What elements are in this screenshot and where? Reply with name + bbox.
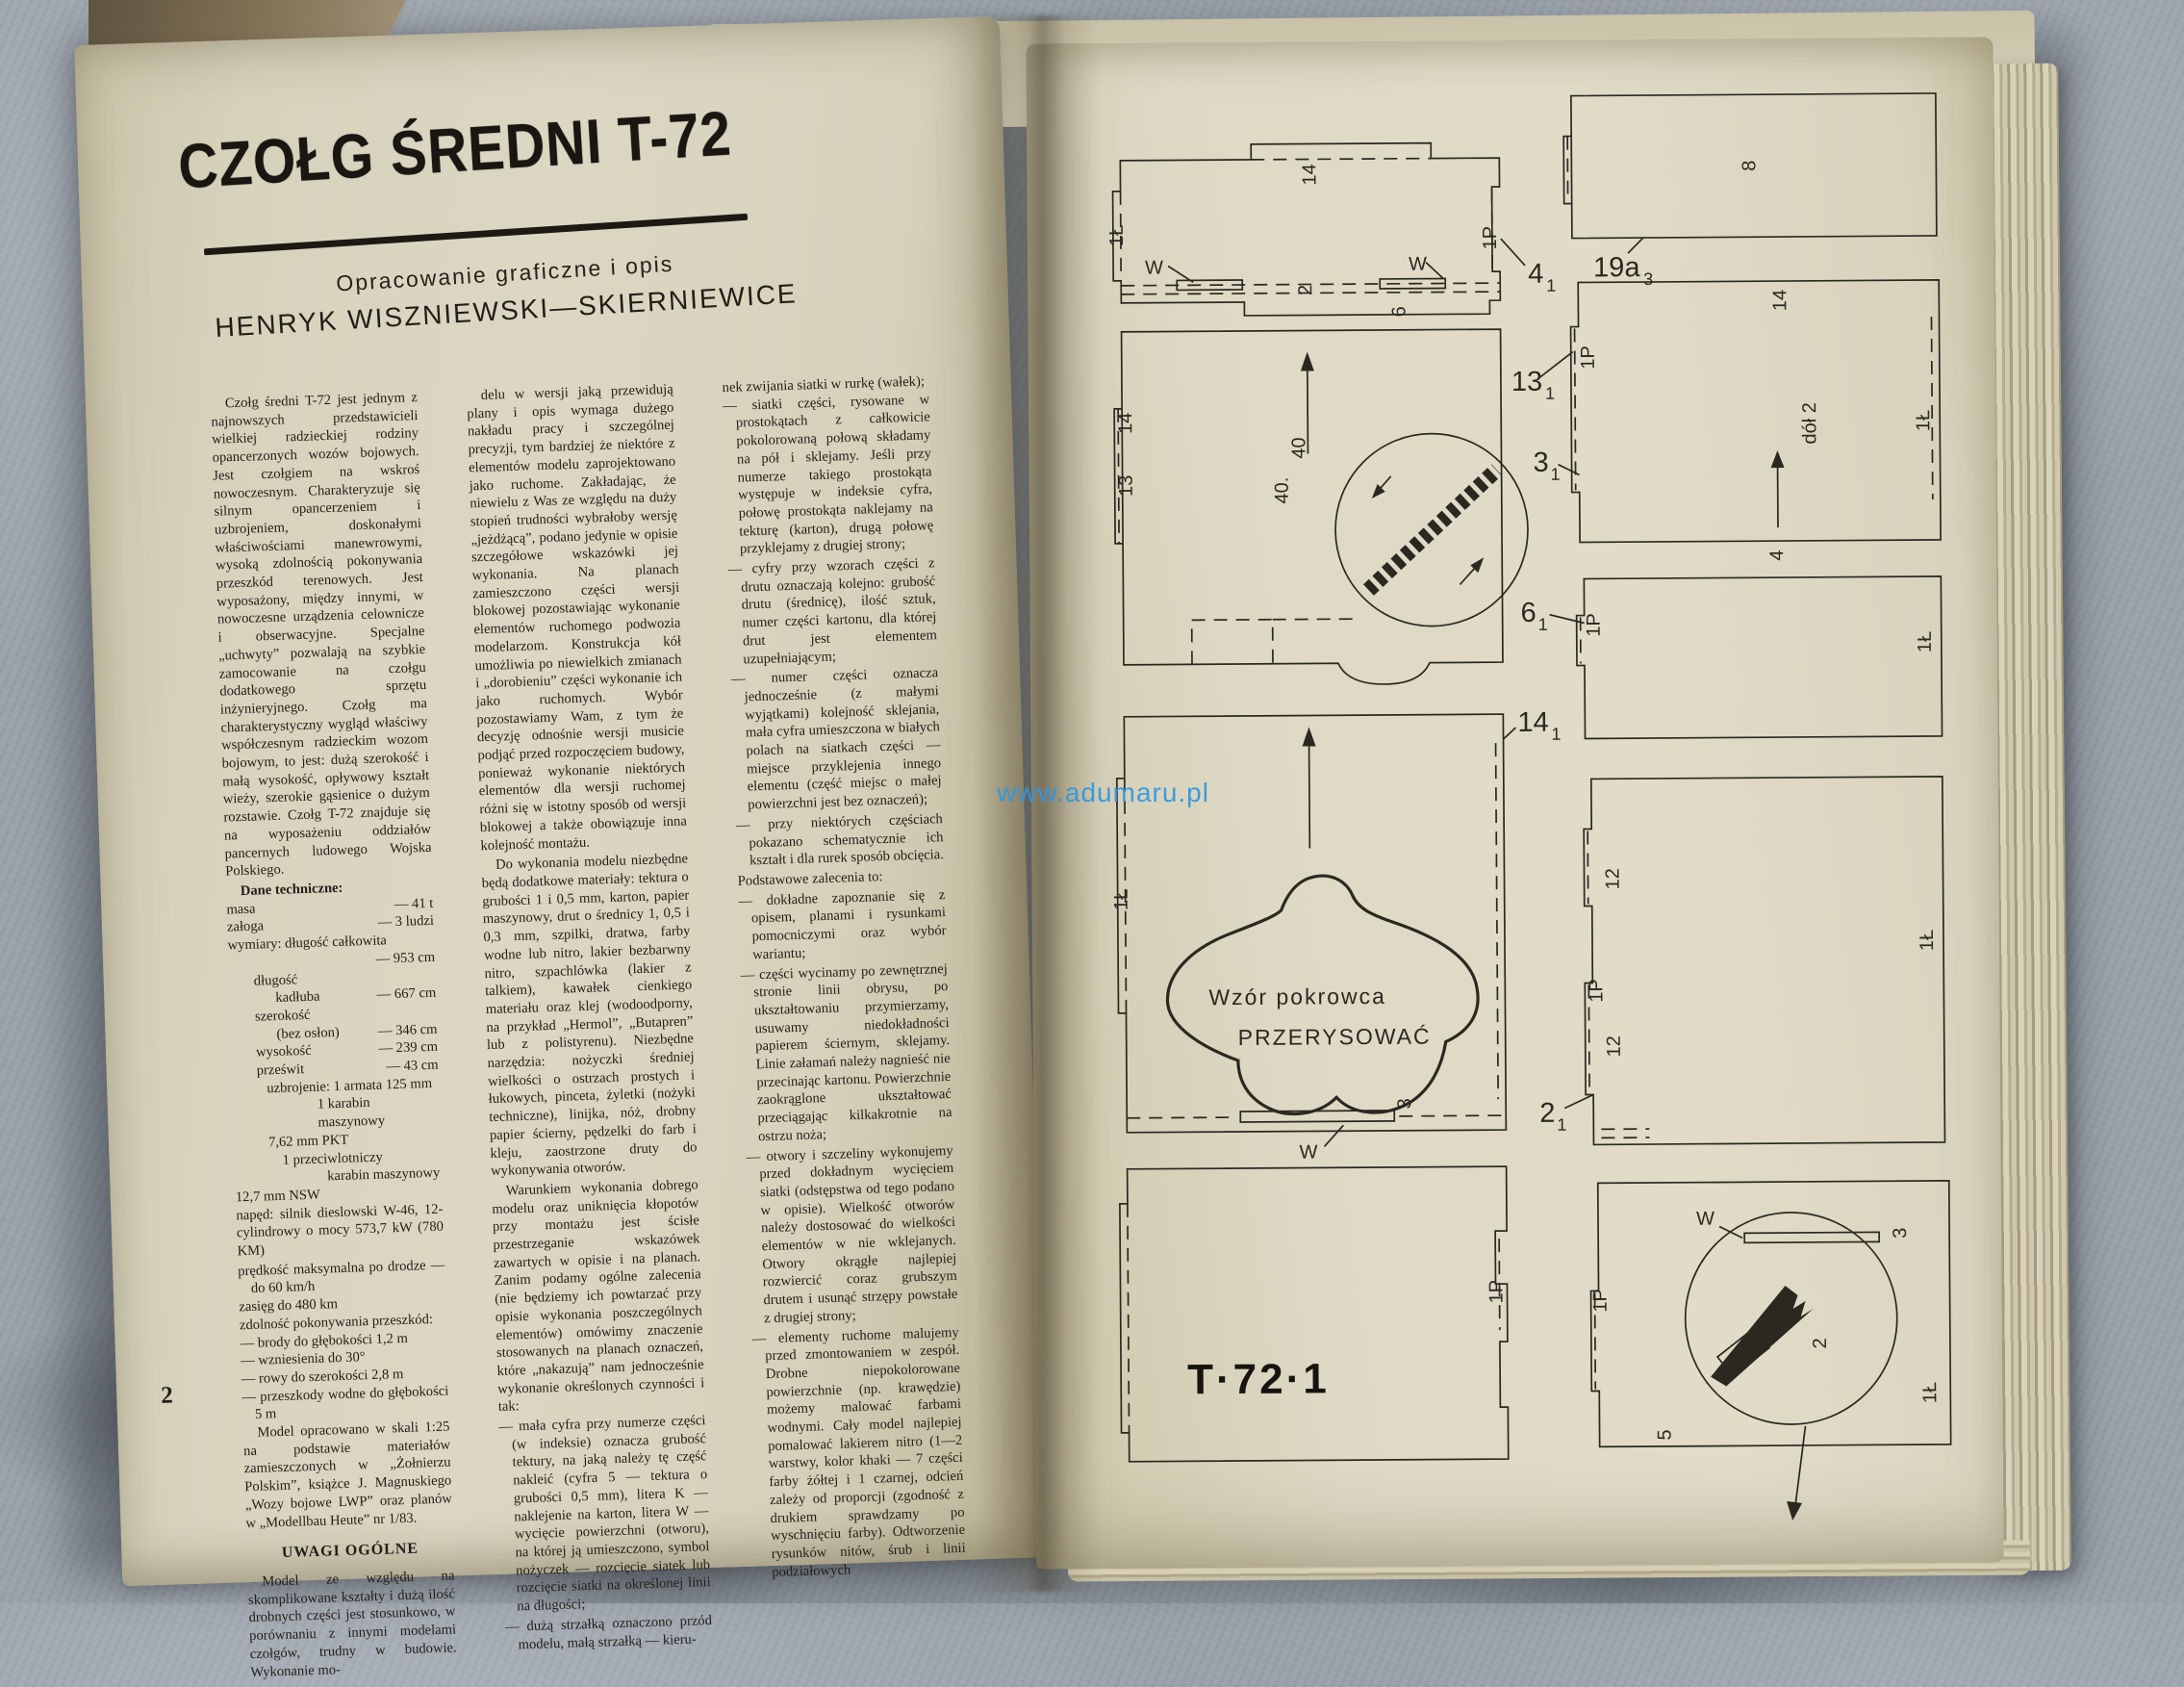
- part-label: 1Ł: [1913, 410, 1934, 431]
- part-a2: 14 13 40 40.: [1114, 329, 1530, 686]
- part-outline: [1570, 280, 1941, 543]
- front-arrow-head: [1302, 727, 1315, 746]
- part-number-callout-sub: 1: [1545, 384, 1555, 403]
- part-label: 6: [1388, 306, 1409, 317]
- drive-note: napęd: silnik dieslowski W-46, 12-cylind…: [236, 1200, 444, 1261]
- bullet-item: — cyfry przy wzorach części z drutu ozna…: [727, 554, 937, 669]
- model-source-note: Model opracowano w skali 1:25 na podstaw…: [242, 1419, 452, 1533]
- part-label: 12: [1604, 1035, 1625, 1057]
- detail-circle: [1334, 433, 1528, 626]
- part-outline: [1120, 1166, 1509, 1462]
- spec-label: długość: [229, 971, 298, 991]
- part-label: 1Ł: [1919, 1382, 1941, 1403]
- intro-paragraph: Czołg średni T-72 jest jednym z najnowsz…: [211, 389, 433, 881]
- part-number-callout: 2: [1539, 1098, 1555, 1129]
- part-label: 3: [1394, 1098, 1415, 1109]
- part-label: 1P: [1586, 979, 1607, 1003]
- part-label: 3: [1890, 1228, 1911, 1239]
- text-line: karabin maszynowy: [327, 1164, 443, 1186]
- bullet-item: — części wycinamy po zewnętrznej stronie…: [741, 960, 953, 1147]
- article-column-2: delu w wersji jaką przewidują plany i op…: [467, 381, 714, 1675]
- column-2-paragraphs: delu w wersji jaką przewidują plany i op…: [467, 381, 706, 1417]
- detail-arrow-head: [1787, 1501, 1802, 1521]
- part-b3: 1P 1Ł 4 6 1: [1520, 549, 1942, 739]
- part-number-callout: 6: [1521, 598, 1536, 628]
- part-number-callout-sub: 1: [1551, 465, 1561, 484]
- spec-value: [434, 931, 435, 949]
- part-b1: 8 19a 3: [1563, 93, 1937, 290]
- spec-value: [435, 966, 436, 984]
- remarks-paragraph: Model ze względu na skomplikowane kształ…: [247, 1567, 457, 1681]
- cutout-label: W: [1696, 1209, 1714, 1230]
- article-title: CZOŁG ŚREDNI T-72: [170, 97, 739, 204]
- cover-pattern-text-2: PRZERYSOWAĆ: [1238, 1024, 1432, 1050]
- column-2-bullets: — mała cyfra przy numerze części (w inde…: [498, 1412, 713, 1654]
- part-number-callout: 14: [1517, 707, 1548, 738]
- label-leader: [1324, 1125, 1343, 1146]
- part-label: 1P: [1480, 226, 1501, 250]
- bullet-item: — siatki części, rysowane w prostokątach…: [723, 391, 934, 559]
- serrated-detail: [1711, 1286, 1815, 1387]
- part-a4: T·72·1 1P: [1120, 1166, 1509, 1462]
- article-column-3: nek zwijania siatki w rurkę (wałek); — s…: [722, 372, 969, 1667]
- spec-value: — 239 cm: [378, 1038, 438, 1059]
- left-page: CZOŁG ŚREDNI T-72 Opracowanie graficzne …: [74, 16, 1048, 1586]
- part-label: 1Ł: [1106, 225, 1128, 246]
- spec-value: — 346 cm: [378, 1020, 438, 1040]
- part-b5: W 3 1P 5 1Ł 2: [1589, 1181, 1951, 1522]
- part-label: 1P: [1578, 345, 1599, 370]
- part-number-callout-sub: 1: [1538, 615, 1548, 634]
- bullet-item: — otwory i szczeliny wykonujemy przed do…: [747, 1141, 959, 1328]
- cutout-label: W: [1409, 254, 1427, 275]
- bullet-item: — dużą strzałką oznaczono przód modelu, …: [505, 1612, 713, 1654]
- callout-leader: [1564, 1094, 1593, 1108]
- callout-leader: [1501, 239, 1525, 266]
- spec-label: prześwit: [231, 1061, 304, 1081]
- spec-value: — 667 cm: [376, 984, 436, 1005]
- page-number: 2: [161, 1383, 173, 1410]
- spec-value: [437, 1003, 438, 1021]
- part-label: 1P: [1584, 613, 1605, 637]
- spec-label: masa: [226, 900, 256, 919]
- front-arrow-head: [1770, 450, 1784, 468]
- part-label: 1P: [1486, 1280, 1507, 1304]
- cutout-label: W: [1145, 258, 1163, 279]
- bullet-item: — dokładne zapoznanie się z opisem, plan…: [738, 886, 947, 965]
- magazine-photo-scene: CZOŁG ŚREDNI T-72 Opracowanie graficzne …: [0, 0, 2184, 1603]
- callout-leader: [1628, 238, 1643, 253]
- spec-label: (bez osłon): [230, 1024, 340, 1045]
- bullet-item: — mała cyfra przy numerze części (w inde…: [498, 1412, 711, 1616]
- spec-value: — 953 cm: [375, 949, 435, 969]
- spec-value: — 3 ludzi: [377, 912, 434, 933]
- part-label: dół 2: [1799, 402, 1820, 445]
- general-remarks-heading: UWAGI OGÓLNE: [246, 1540, 453, 1564]
- part-label: 1Ł: [1915, 631, 1936, 652]
- body-paragraph: delu w wersji jaką przewidują plany i op…: [467, 381, 688, 856]
- armament-list: uzbrojenie: 1 armata 125 mm1 karabin mas…: [232, 1074, 443, 1207]
- watermark-text: www.adumaru.pl: [997, 778, 1209, 808]
- part-label: 1Ł: [1111, 889, 1132, 910]
- bullet-item: — przy niektórych częściach pokazano sch…: [736, 810, 945, 871]
- part-number-callout-sub: 1: [1546, 276, 1556, 295]
- part-a3: Wzór pokrowca PRZERYSOWAĆ 1Ł W 3 14 1: [1109, 707, 1563, 1164]
- part-label: 4: [1766, 550, 1788, 560]
- title-underline-rule: [204, 214, 748, 256]
- part-b2: 14 1P dół 2 1Ł 13 1 3 1: [1511, 280, 1941, 543]
- front-arrow-head: [1301, 351, 1314, 371]
- part-label: 14: [1299, 164, 1320, 185]
- bullet-item: — elementy ruchome malujemy przed zmonto…: [751, 1323, 966, 1581]
- column-3-bullets-a: — siatki części, rysowane w prostokątach…: [723, 391, 944, 871]
- part-number-callout: 13: [1511, 367, 1542, 397]
- spec-label: [228, 955, 229, 973]
- performance-list: prędkość maksymalna po drodze — do 60 km…: [238, 1256, 449, 1424]
- part-b4: 12 1P 12 1Ł 2 1: [1537, 777, 1945, 1145]
- part-number-callout: 19a: [1593, 252, 1640, 283]
- body-paragraph: Do wykonania modelu niezbędne będą dodat…: [481, 851, 698, 1181]
- part-label: 12: [1602, 868, 1623, 889]
- part-label: 8: [1739, 161, 1760, 171]
- article-columns: Czołg średni T-72 jest jednym z najnowsz…: [211, 372, 971, 1683]
- part-label: 5: [1655, 1429, 1676, 1440]
- sheet-code: T·72·1: [1187, 1355, 1330, 1403]
- article-column-1: Czołg średni T-72 jest jednym z najnowsz…: [211, 389, 458, 1683]
- front-arrow-shaft: [1309, 740, 1310, 848]
- part-label: 13: [1116, 475, 1137, 497]
- bullet-item: — numer części oznacza jednocześnie (z m…: [731, 664, 943, 814]
- callout-leader: [1503, 728, 1515, 739]
- part-label: 14: [1769, 290, 1790, 311]
- body-paragraph: Warunkiem wykonania dobrego modelu oraz …: [491, 1176, 705, 1417]
- part-number-callout-sub: 3: [1643, 269, 1653, 289]
- fold-lines: [1118, 407, 1356, 665]
- part-outline: [1576, 576, 1942, 739]
- part-label: 40: [1288, 437, 1309, 458]
- part-number-callout: 4: [1528, 259, 1543, 290]
- part-label: 14: [1115, 413, 1136, 434]
- text-line: 1 karabin maszynowy: [317, 1092, 441, 1132]
- spec-label: załoga: [227, 918, 265, 937]
- column-3-bullets-b: — dokładne zapoznanie się z opisem, plan…: [738, 886, 966, 1582]
- spec-value: — 43 cm: [386, 1057, 439, 1076]
- part-label: 40.: [1272, 477, 1293, 504]
- cutout-label: W: [1299, 1141, 1317, 1163]
- spec-value: — 41 t: [394, 894, 434, 913]
- cover-pattern-text-1: Wzór pokrowca: [1208, 984, 1386, 1010]
- part-label: 2: [1810, 1338, 1831, 1348]
- part-label: 2: [1295, 285, 1316, 295]
- callout-leader: [1540, 352, 1573, 377]
- tech-specs-table: masa— 41 t załoga— 3 ludzi wymiary: dług…: [226, 894, 439, 1081]
- part-outline: [1584, 777, 1945, 1145]
- part-number-callout-sub: 1: [1557, 1115, 1566, 1135]
- part-label: 1P: [1590, 1289, 1612, 1313]
- part-a1: 14 1Ł 1P W W 2 6 4 1: [1105, 142, 1556, 320]
- part-number-callout-sub: 1: [1551, 725, 1561, 744]
- part-number-callout: 3: [1533, 447, 1548, 478]
- fold-lines: [1574, 317, 1932, 502]
- detail-arrow: [1795, 1426, 1807, 1505]
- part-label: 1Ł: [1917, 930, 1938, 951]
